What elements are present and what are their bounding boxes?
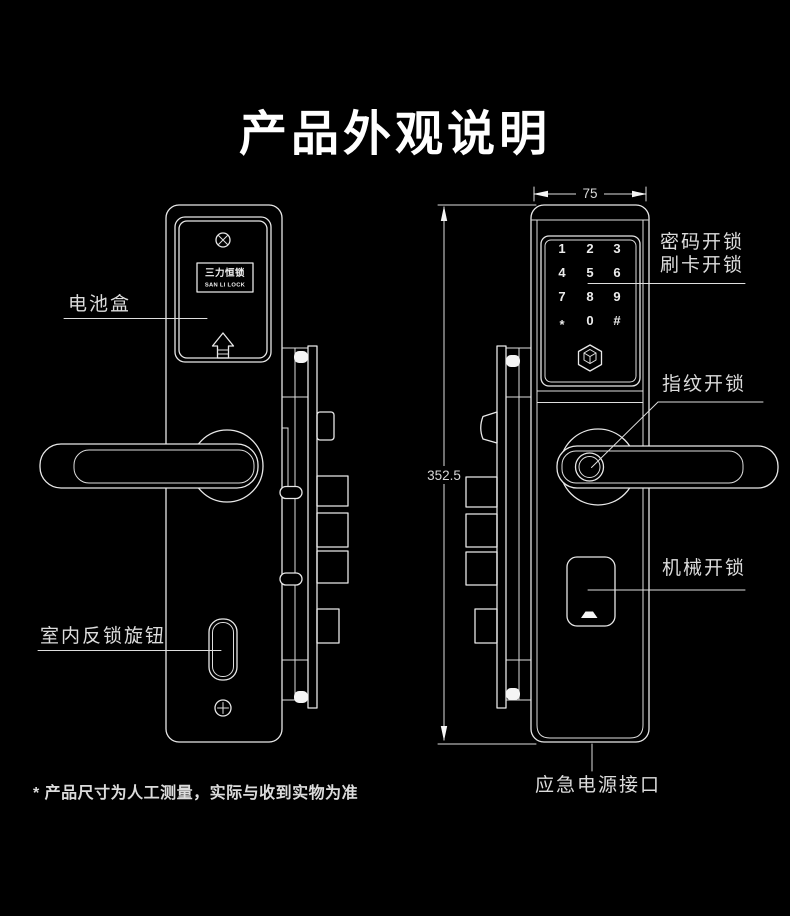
measurement-disclaimer: * 产品尺寸为人工测量，实际与收到实物为准 (33, 779, 358, 803)
indoor-knob-label: 室内反锁旋钮 (40, 625, 166, 647)
keypad-key-4: 4 (558, 265, 566, 280)
brand-logo-icon (579, 345, 602, 371)
fingerprint-unlock-label: 指纹开锁 (662, 373, 746, 395)
screw-icon (216, 233, 230, 247)
card-unlock-label: 刷卡开锁 (660, 254, 744, 276)
keypad-key-9: 9 (613, 289, 620, 304)
dimension-arrow-left (533, 191, 548, 197)
mortise-case-lines (506, 348, 531, 700)
mortise-side-view-right (466, 346, 531, 708)
dimension-arrow-right (632, 191, 647, 197)
mortise-case-lines (282, 348, 308, 700)
dead-bolt (317, 513, 348, 547)
keypad-key-8: 8 (586, 289, 593, 304)
keypad-key-5: 5 (586, 265, 593, 280)
keyhole-cover-tab (581, 612, 598, 619)
dimension-width: 75 (533, 185, 647, 201)
screw-icon (215, 700, 231, 716)
faceplate (497, 346, 506, 708)
faceplate-screw (294, 691, 308, 703)
battery-cover-inner (179, 221, 267, 358)
dead-bolt (466, 477, 497, 507)
dead-bolt (466, 552, 497, 585)
latch-bolt (317, 412, 334, 440)
dead-bolt (317, 476, 348, 506)
deadbolt-knob-inner (213, 623, 234, 677)
faceplate-screw (506, 688, 520, 700)
emergency-power-label: 应急电源接口 (535, 774, 661, 796)
panel-section-lines (537, 391, 643, 403)
dead-bolt (466, 514, 497, 547)
keypad-key-1: 1 (558, 241, 565, 256)
brand-name-en: SAN LI LOCK (205, 283, 246, 289)
keypad-key-hash: # (613, 313, 621, 328)
keypad-key-3: 3 (613, 241, 620, 256)
keypad-key-2: 2 (586, 241, 593, 256)
mortise-side-view-left (280, 346, 348, 708)
dead-bolt (317, 551, 348, 583)
battery-cover-outer (175, 217, 271, 362)
faceplate (308, 346, 317, 708)
keypad-key-6: 6 (613, 265, 620, 280)
handle-lever-outer (40, 444, 258, 488)
keypad-panel: 1 2 3 4 5 6 7 8 9 * 0 # (541, 236, 640, 386)
brand-name-cn: 三力恒锁 (205, 267, 245, 279)
keypad-key-0: 0 (586, 313, 593, 328)
outdoor-handle (557, 429, 778, 505)
indoor-handle (40, 430, 263, 502)
latch-bolt (481, 412, 497, 443)
keypad-key-star: * (559, 317, 565, 332)
mechanical-unlock-label: 机械开锁 (662, 557, 746, 579)
keypad-key-7: 7 (558, 289, 565, 304)
faceplate-screw (506, 355, 520, 367)
spindle-pin (280, 487, 302, 499)
dimension-arrow-down (441, 726, 447, 741)
width-dimension-value: 75 (582, 186, 597, 201)
faceplate-screw (294, 351, 308, 363)
spindle-pin (280, 573, 302, 585)
dimension-arrow-up (441, 206, 447, 221)
handle-lever-outer (557, 446, 778, 488)
arrow-up-icon (213, 333, 234, 358)
height-dimension-value: 352.5 (427, 468, 461, 483)
battery-box-label: 电池盒 (68, 293, 131, 315)
auxiliary-bolt (475, 609, 497, 643)
password-unlock-label: 密码开锁 (660, 231, 744, 253)
auxiliary-bolt (317, 609, 339, 643)
